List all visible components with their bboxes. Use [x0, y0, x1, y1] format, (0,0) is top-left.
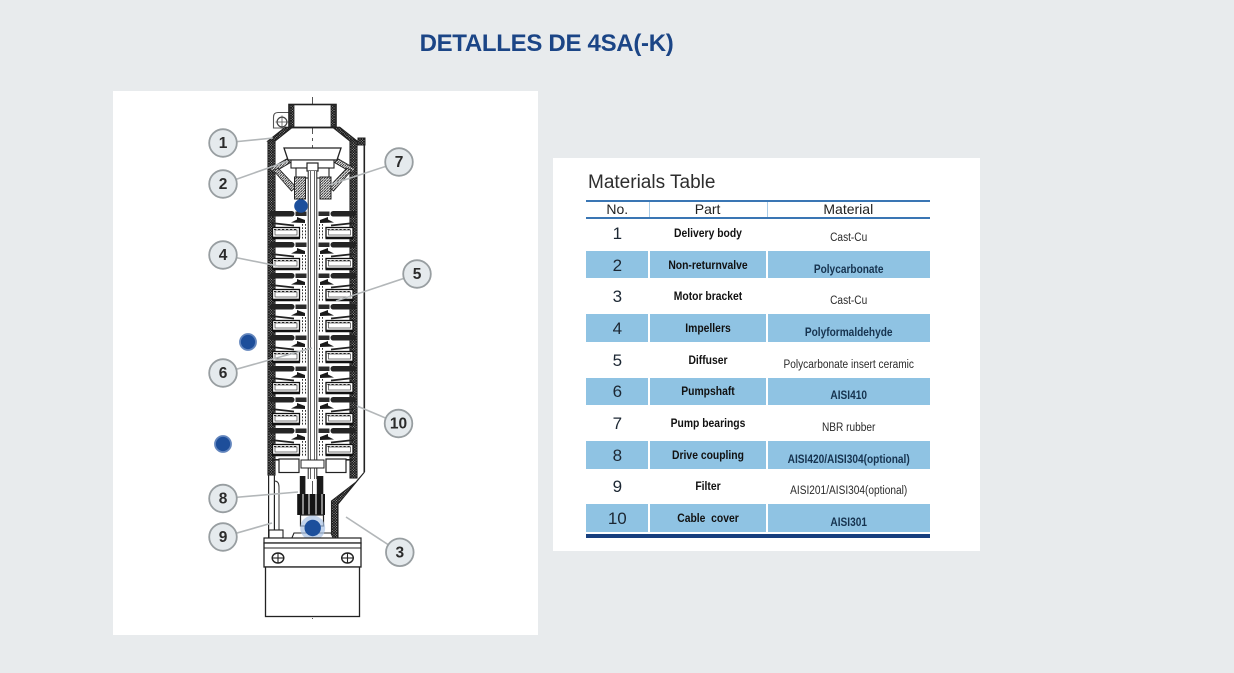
svg-text:3: 3	[395, 544, 404, 561]
svg-text:9: 9	[219, 529, 228, 546]
svg-text:7: 7	[395, 154, 404, 171]
svg-text:10: 10	[390, 416, 407, 433]
svg-text:5: 5	[413, 266, 422, 283]
svg-text:8: 8	[219, 491, 228, 508]
svg-text:4: 4	[219, 247, 228, 264]
svg-text:6: 6	[219, 365, 228, 382]
svg-text:1: 1	[219, 135, 228, 152]
svg-text:2: 2	[219, 176, 228, 193]
